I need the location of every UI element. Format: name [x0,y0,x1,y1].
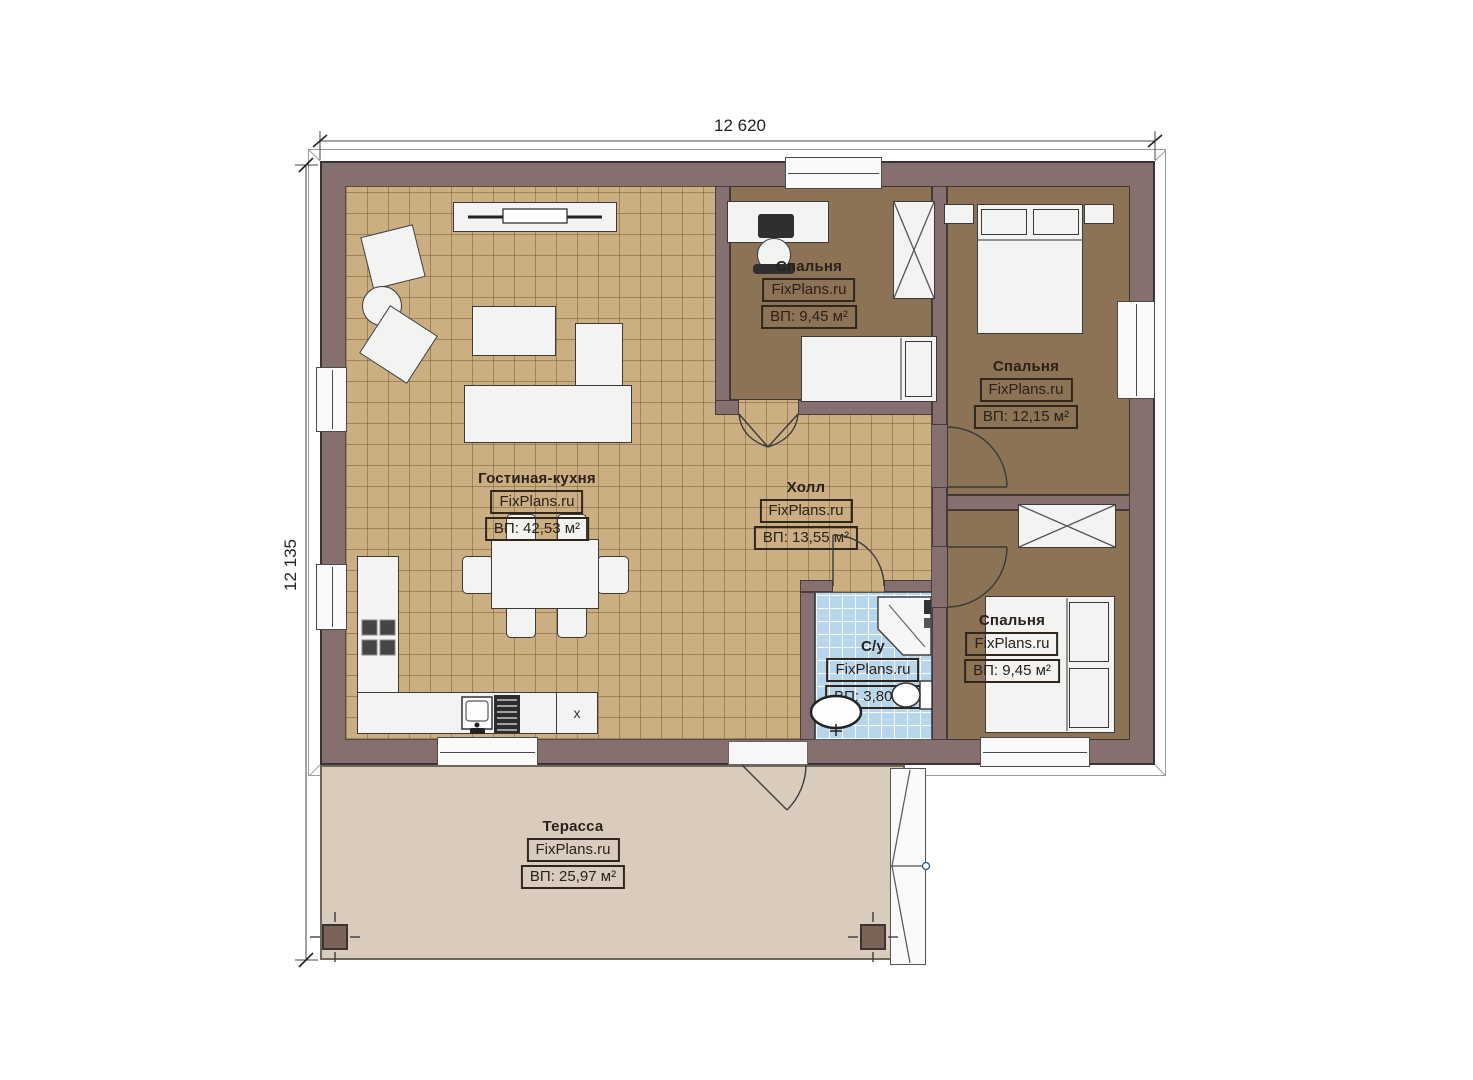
room-area: ВП: 9,45 м² [964,659,1060,683]
dishwasher-label: x [574,705,581,721]
window-bedroom-right [1117,301,1155,399]
terrace-post-left [322,924,348,950]
pillow [1033,209,1079,235]
terrace-door-opening [728,741,808,765]
pillow [905,341,932,397]
room-area: ВП: 13,55 м² [754,526,858,550]
room-name: Спальня [776,258,842,275]
wall-hall-bedrooms-2 [932,487,947,547]
label-hall: Холл FixPlans.ru ВП: 13,55 м² [754,479,858,550]
dining-chair [462,556,494,594]
dimension-height-label: 12 135 [281,505,301,625]
label-terrace: Терасса FixPlans.ru ВП: 25,97 м² [521,818,625,889]
wall-bedroom-top-bottom-left [715,400,739,415]
terrace-stair [890,768,926,965]
printer [758,214,794,238]
window-bedroom-bottom [980,737,1090,767]
dishwasher: x [556,692,598,734]
room-name: Спальня [979,612,1045,629]
dining-chair [557,604,587,638]
pillow [981,209,1027,235]
wall-bathroom-top-right [884,580,932,592]
dining-table [491,539,599,609]
room-name: Спальня [993,358,1059,375]
label-bedroom-top: Спальня FixPlans.ru ВП: 9,45 м² [761,258,857,329]
window-bedroom-top [785,157,882,189]
terrace-post-right [860,924,886,950]
tv-console [453,202,617,232]
wall-bedroom-top-bottom-right [798,400,932,415]
watermark: FixPlans.ru [965,632,1058,656]
wall-bathroom-top-left [800,580,833,592]
room-name: Терасса [543,818,604,835]
label-bedroom-bottom: Спальня FixPlans.ru ВП: 9,45 м² [964,612,1060,683]
nightstand [944,204,974,224]
watermark: FixPlans.ru [826,658,919,682]
dining-chair [597,556,629,594]
window-left-kitchen [316,564,347,630]
label-bedroom-right: Спальня FixPlans.ru ВП: 12,15 м² [974,358,1078,429]
room-area: ВП: 9,45 м² [761,305,857,329]
room-name: С/у [861,638,885,655]
wall-hall-bedrooms-3 [932,607,947,740]
floor-plan-canvas: x 12 620 12 135 Гостиная-кухня FixPlans.… [0,0,1473,1080]
label-bathroom: С/у FixPlans.ru ВП: 3,80 м² [825,638,921,709]
room-area: ВП: 42,53 м² [485,517,589,541]
watermark: FixPlans.ru [490,490,583,514]
room-name: Гостиная-кухня [478,470,596,487]
label-living-kitchen: Гостиная-кухня FixPlans.ru ВП: 42,53 м² [478,470,596,541]
coffee-table [472,306,556,356]
room-area: ВП: 12,15 м² [974,405,1078,429]
wardrobe-bedroom-top [893,201,935,299]
nightstand [1084,204,1114,224]
room-area: ВП: 25,97 м² [521,865,625,889]
pillow [1069,668,1109,728]
room-area: ВП: 3,80 м² [825,685,921,709]
wall-bathroom-left [800,592,815,740]
watermark: FixPlans.ru [526,838,619,862]
pillow [1069,602,1109,662]
watermark: FixPlans.ru [759,499,852,523]
watermark: FixPlans.ru [762,278,855,302]
wardrobe-bedroom-bottom [1018,504,1116,548]
window-left-living [316,367,347,432]
dining-chair [506,604,536,638]
window-kitchen-bottom [437,737,538,767]
watermark: FixPlans.ru [979,378,1072,402]
dimension-width-label: 12 620 [695,116,785,136]
room-name: Холл [787,479,825,496]
sofa [464,385,632,443]
